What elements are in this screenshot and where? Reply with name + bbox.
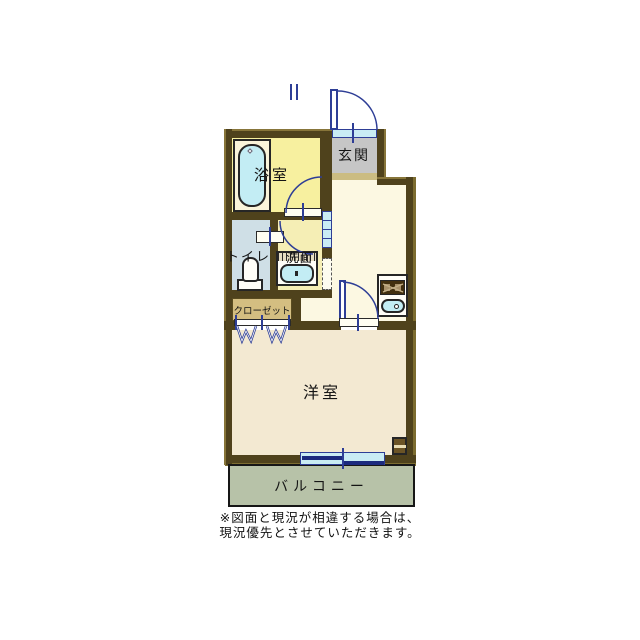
wall-room-top-right	[377, 321, 416, 330]
wall-washroom-right	[322, 247, 332, 258]
hall-floor-annex	[301, 298, 332, 321]
entrance-threshold-tick	[352, 123, 354, 143]
western-room-label: 洋室	[303, 379, 341, 403]
balcony-label: バルコニー	[274, 476, 369, 496]
closet-bar-tick	[235, 315, 237, 330]
pipe-space-line	[394, 445, 406, 448]
disclaimer-note: ※図面と現況が相違する場合は、 現況優先とさせていただきます。	[0, 510, 640, 540]
wall-sanitary-bottom	[232, 290, 332, 298]
room-door-tick	[357, 314, 359, 331]
entrance-door-swing-icon	[338, 91, 377, 130]
balcony-area: バルコニー	[228, 464, 415, 507]
balcony-window-tick	[342, 448, 344, 469]
entrance-label: 玄関	[338, 145, 370, 165]
vent-mark	[290, 84, 298, 100]
entrance-step	[332, 173, 377, 180]
closet-bar-tick	[261, 315, 263, 330]
closet-label: クローゼット	[233, 303, 290, 317]
dashed-partition	[322, 258, 332, 290]
wall-bath-entrance	[320, 137, 332, 215]
kitchen-sink-icon	[381, 299, 405, 313]
floorplan-canvas: クローゼット バルコニー	[0, 0, 640, 640]
stove-burner-icon	[395, 284, 401, 291]
disclaimer-line-1: ※図面と現況が相違する場合は、	[0, 510, 640, 525]
entrance-door-icon	[330, 89, 338, 130]
entrance-threshold	[332, 129, 377, 138]
wall-left	[224, 129, 232, 465]
room-door-threshold	[339, 318, 379, 327]
kitchen-sink-drain-icon	[394, 304, 399, 309]
disclaimer-line-2: 現況優先とさせていただきます。	[0, 525, 640, 540]
sliding-window-icon	[343, 461, 384, 465]
washroom-window-icon	[322, 211, 332, 248]
bath-door-tick	[302, 203, 304, 221]
wall-room-top-mid	[290, 321, 341, 330]
washbasin-drain-icon	[295, 271, 298, 276]
closet-bar-tick	[288, 315, 290, 330]
toilet-label: トイレ	[226, 246, 271, 265]
stove-burner-icon	[384, 284, 390, 291]
bathroom-label: 浴室	[254, 164, 290, 185]
room-door-leaf	[339, 280, 346, 320]
washroom-label: 洗面	[286, 247, 313, 266]
toilet-door-tick	[269, 227, 271, 246]
sliding-window-icon	[302, 456, 343, 460]
